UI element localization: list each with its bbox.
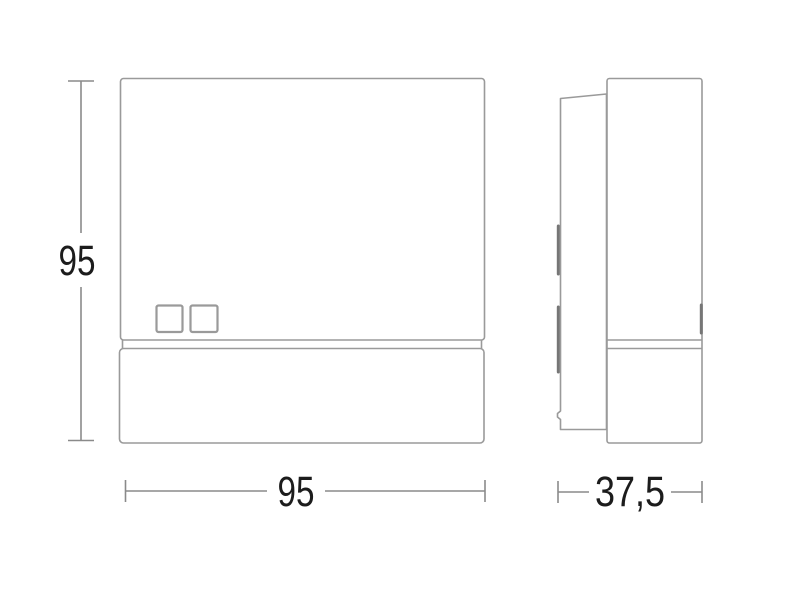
front-sensor-windows [157, 306, 218, 333]
side-view [558, 79, 703, 444]
front-upper-body [121, 79, 485, 341]
width-dimension-label: 95 [278, 468, 315, 516]
height-dimension-label: 95 [59, 237, 96, 285]
side-clip-details [558, 226, 701, 372]
sensor-window-right [191, 306, 218, 333]
side-back-plate [558, 94, 607, 430]
sensor-window-left [157, 306, 183, 333]
dimension-drawing: 95 95 37,5 [0, 0, 796, 595]
depth-dimension-label: 37,5 [595, 468, 665, 516]
side-front-body [607, 79, 702, 444]
front-view [120, 79, 485, 444]
front-bottom-panel [120, 349, 485, 444]
drawing-svg: 95 95 37,5 [0, 0, 796, 595]
